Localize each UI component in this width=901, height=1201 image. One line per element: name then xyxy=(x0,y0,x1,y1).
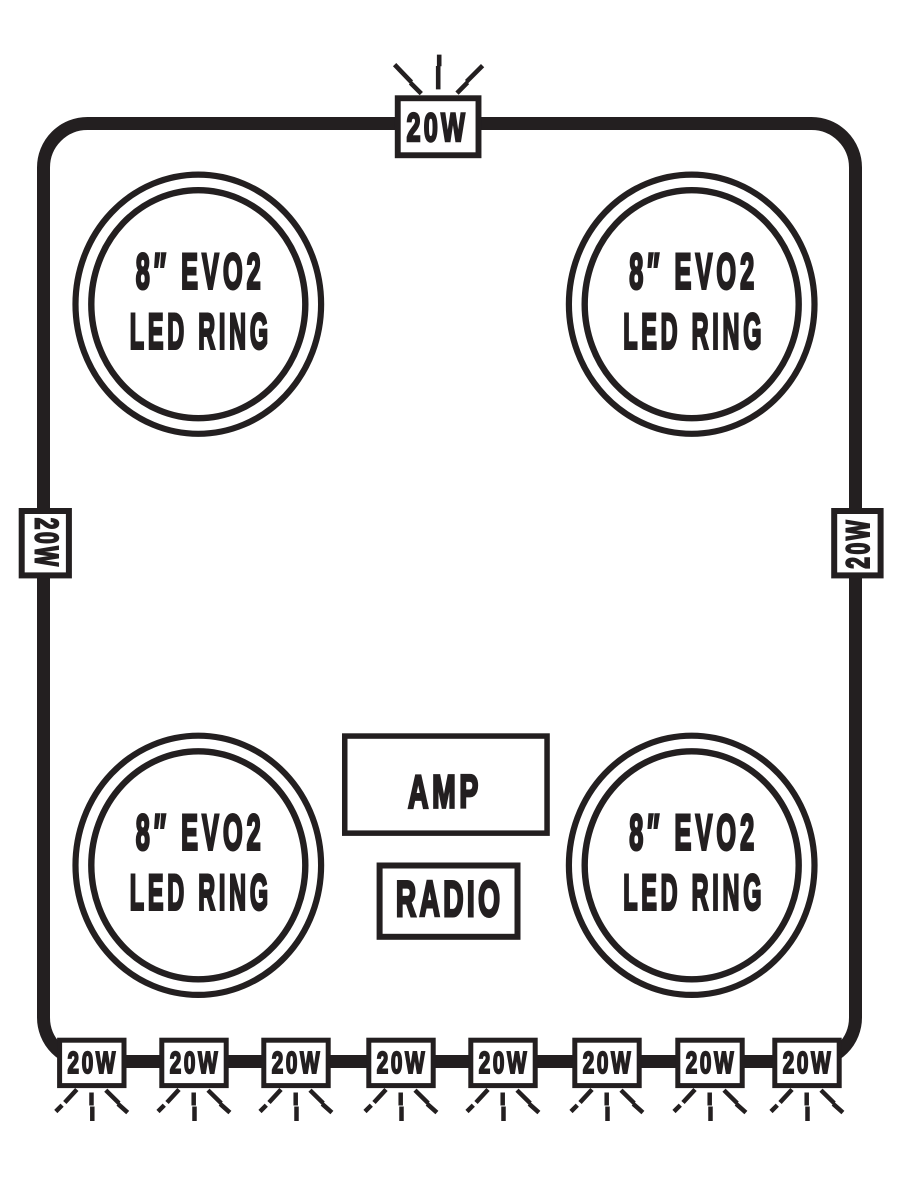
svg-text:20W: 20W xyxy=(170,1046,221,1080)
svg-text:AMP: AMP xyxy=(408,766,482,818)
svg-text:20W: 20W xyxy=(840,518,876,569)
svg-text:20W: 20W xyxy=(783,1046,834,1080)
svg-text:20W: 20W xyxy=(377,1046,428,1080)
svg-text:20W: 20W xyxy=(583,1046,634,1080)
svg-text:20W: 20W xyxy=(407,106,469,150)
svg-text:20W: 20W xyxy=(29,518,65,569)
svg-text:20W: 20W xyxy=(272,1046,323,1080)
svg-text:20W: 20W xyxy=(68,1046,119,1080)
svg-text:20W: 20W xyxy=(686,1046,737,1080)
svg-text:20W: 20W xyxy=(479,1046,530,1080)
svg-text:RADIO: RADIO xyxy=(396,871,504,927)
